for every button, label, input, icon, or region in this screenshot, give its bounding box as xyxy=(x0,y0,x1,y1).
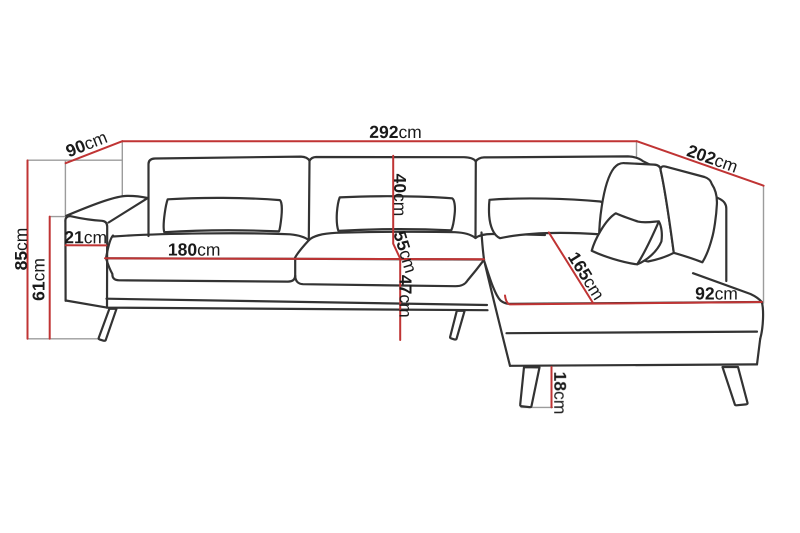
svg-text:47cm: 47cm xyxy=(396,275,416,318)
svg-text:292cm: 292cm xyxy=(369,122,422,142)
svg-text:40cm: 40cm xyxy=(390,174,410,217)
svg-text:61cm: 61cm xyxy=(28,258,48,301)
svg-text:92cm: 92cm xyxy=(695,283,738,303)
svg-text:18cm: 18cm xyxy=(550,372,570,415)
svg-text:21cm: 21cm xyxy=(64,227,107,247)
svg-text:180cm: 180cm xyxy=(168,240,221,260)
